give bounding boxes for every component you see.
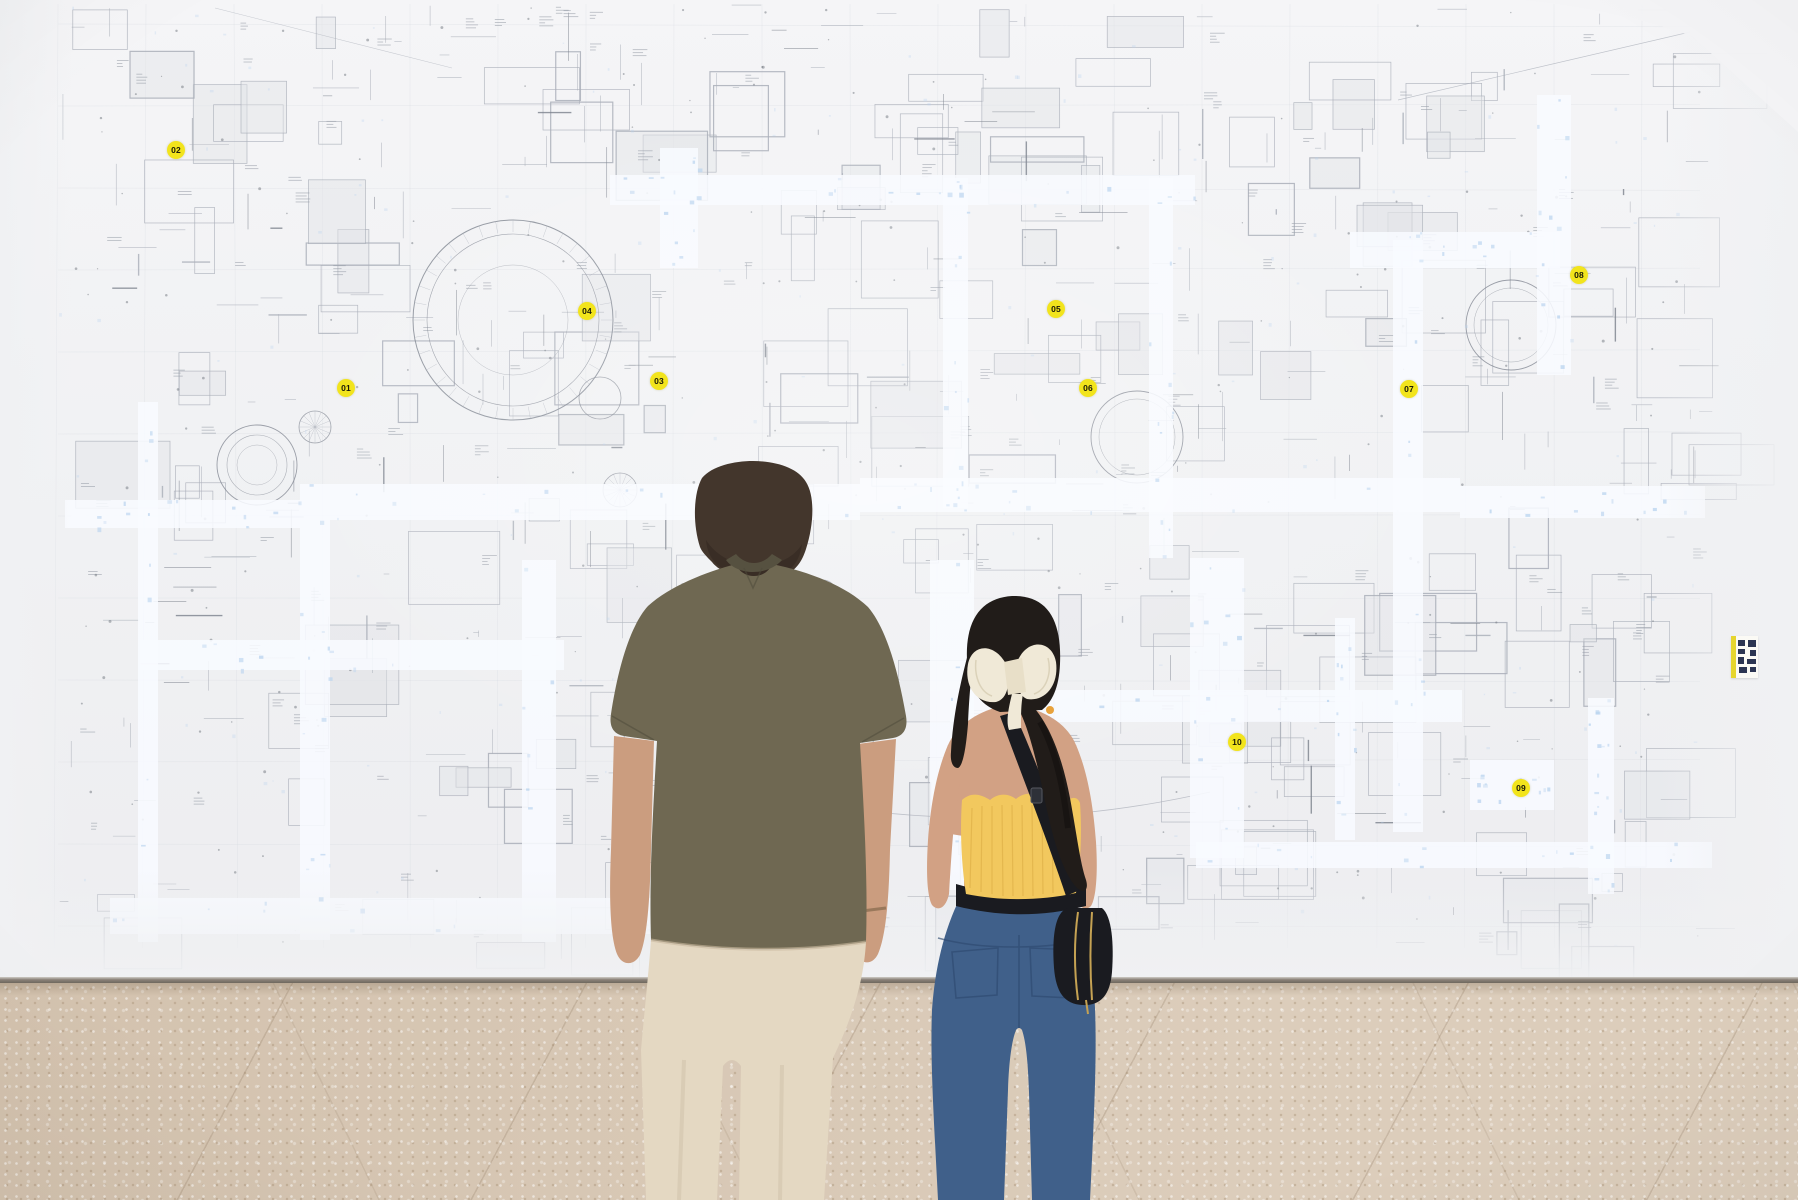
gallery-scene: 01 02 03 04 05 06 07 08 09 10 [0,0,1798,1200]
bag [1053,908,1112,1005]
man-left-arm [610,736,654,963]
woman-visitor [927,596,1113,1200]
visitors [0,0,1798,1200]
man-visitor [610,461,906,1200]
man-pants [641,940,866,1200]
strap-buckle [1031,788,1042,803]
hair-tie [1046,706,1054,714]
